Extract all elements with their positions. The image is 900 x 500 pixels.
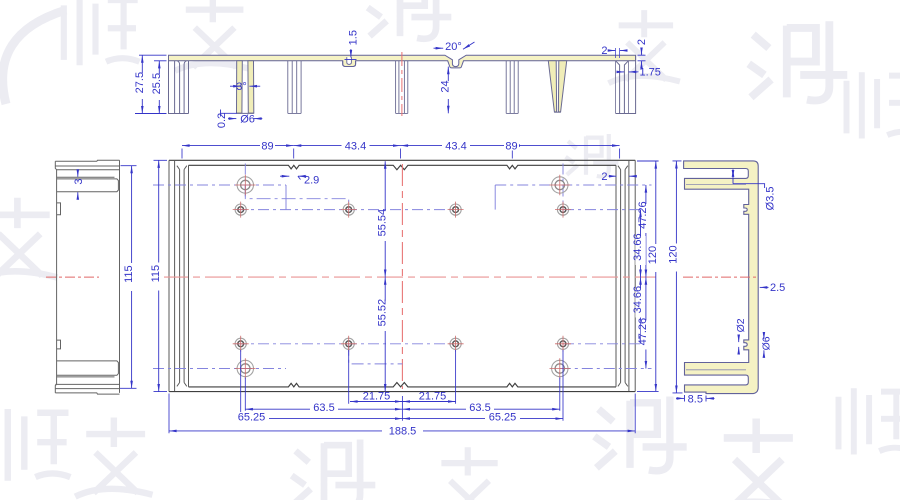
svg-text:43.4: 43.4 [445,141,466,153]
svg-text:24: 24 [440,80,452,92]
svg-text:Ø2: Ø2 [735,318,747,332]
svg-text:27.5: 27.5 [134,72,146,93]
svg-text:47.26: 47.26 [637,201,649,229]
svg-text:89: 89 [261,140,273,152]
svg-text:43.4: 43.4 [345,141,366,153]
svg-text:20°: 20° [445,41,462,53]
svg-text:120: 120 [647,246,659,264]
svg-text:Ø6: Ø6 [240,114,255,126]
svg-text:65.25: 65.25 [238,411,266,423]
svg-text:120: 120 [668,245,680,263]
svg-text:2: 2 [601,171,607,183]
svg-text:34.66: 34.66 [632,233,644,261]
svg-text:3°: 3° [236,81,247,93]
svg-text:1.75: 1.75 [640,67,661,79]
svg-text:21.75: 21.75 [419,391,447,403]
svg-text:2: 2 [636,39,648,45]
svg-text:21.75: 21.75 [363,391,391,403]
svg-text:65.25: 65.25 [489,411,517,423]
svg-text:2.5: 2.5 [770,282,785,294]
svg-text:2.9: 2.9 [304,175,319,187]
svg-text:2: 2 [601,45,607,57]
svg-text:8.5: 8.5 [688,393,703,405]
svg-text:55.52: 55.52 [377,299,389,327]
svg-text:3: 3 [73,179,85,185]
svg-text:55.54: 55.54 [377,209,389,237]
svg-text:63.5: 63.5 [313,402,334,414]
svg-text:34.66: 34.66 [632,286,644,314]
svg-text:25.5: 25.5 [151,73,163,94]
svg-text:Ø3.5: Ø3.5 [764,186,776,210]
svg-text:188.5: 188.5 [389,425,417,437]
svg-text:Ø6: Ø6 [760,336,772,350]
svg-text:1.5: 1.5 [348,30,360,45]
svg-text:47.26: 47.26 [637,318,649,346]
svg-text:0.2: 0.2 [216,113,228,128]
svg-text:115: 115 [150,265,162,283]
svg-text:115: 115 [123,265,135,283]
svg-text:89: 89 [505,140,517,152]
